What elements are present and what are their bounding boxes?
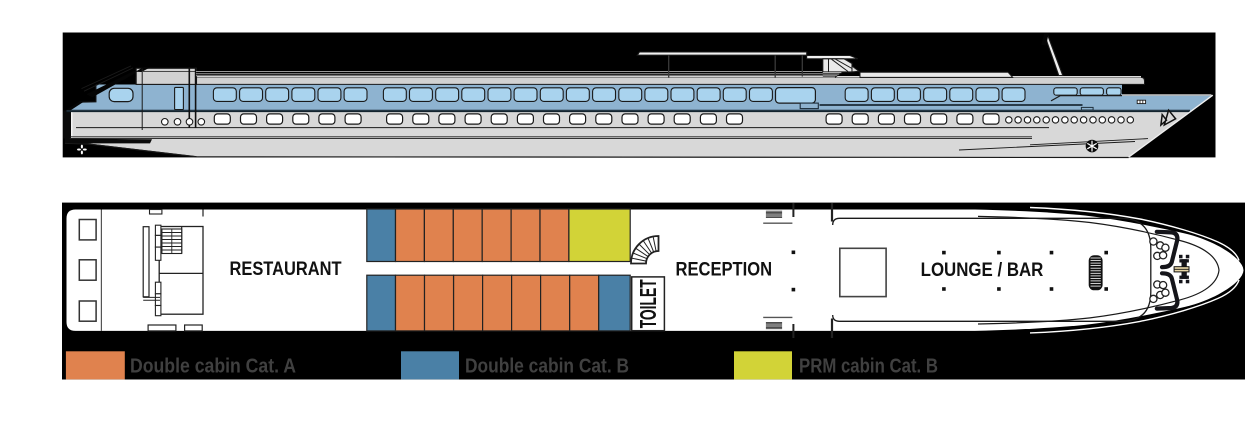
- svg-text:RESTAURANT: RESTAURANT: [230, 259, 342, 280]
- svg-text:LOUNGE / BAR: LOUNGE / BAR: [921, 259, 1044, 281]
- svg-text:PRM cabin Cat. B: PRM cabin Cat. B: [799, 356, 938, 378]
- svg-text:RECEPTION: RECEPTION: [676, 258, 773, 280]
- svg-text:TOILET: TOILET: [635, 279, 661, 328]
- svg-text:Double cabin Cat. B: Double cabin Cat. B: [465, 356, 629, 378]
- svg-text:Double cabin Cat. A: Double cabin Cat. A: [130, 356, 296, 378]
